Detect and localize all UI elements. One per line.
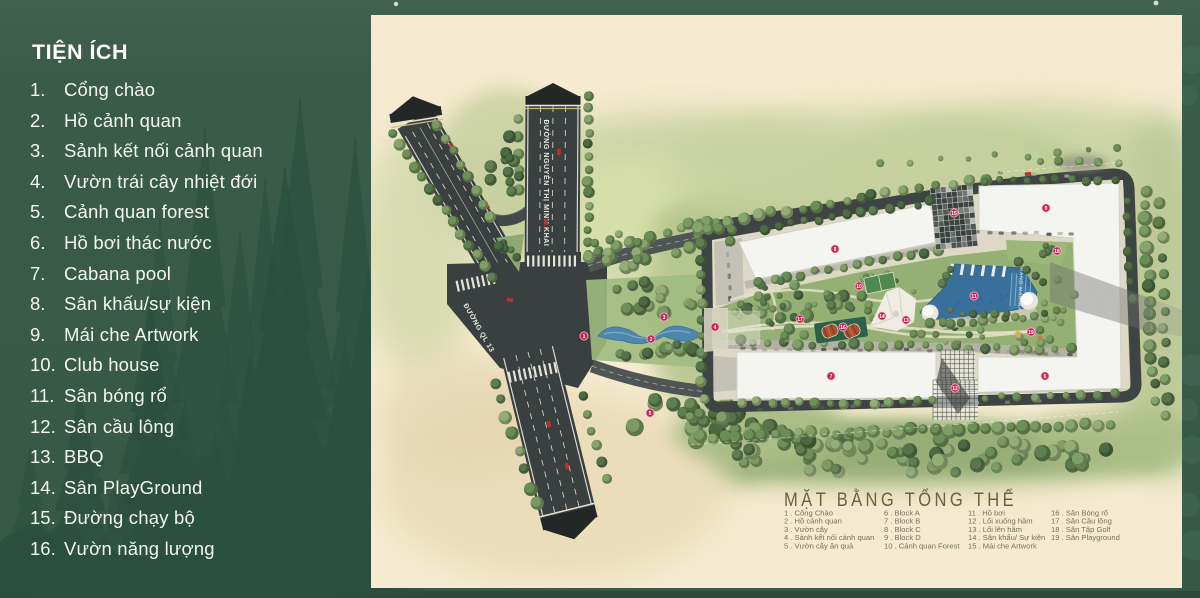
svg-text:16: 16 xyxy=(840,325,846,331)
svg-text:15: 15 xyxy=(951,211,957,217)
svg-text:2: 2 xyxy=(650,337,653,343)
svg-text:12: 12 xyxy=(952,386,958,392)
svg-text:6: 6 xyxy=(1044,374,1047,380)
svg-text:14: 14 xyxy=(879,314,885,320)
svg-text:7: 7 xyxy=(830,374,833,380)
svg-text:9: 9 xyxy=(1045,206,1048,212)
svg-text:8: 8 xyxy=(834,247,837,253)
svg-text:19 . Sân Playground: 19 . Sân Playground xyxy=(1051,533,1120,542)
svg-text:13: 13 xyxy=(903,318,909,324)
svg-text:17: 17 xyxy=(797,317,803,323)
svg-text:ĐƯỜNG NGUYỄN THỊ MINH KHAI: ĐƯỜNG NGUYỄN THỊ MINH KHAI xyxy=(542,120,551,247)
svg-text:10: 10 xyxy=(856,284,862,290)
svg-text:11: 11 xyxy=(971,294,977,300)
svg-text:19: 19 xyxy=(1028,330,1034,336)
svg-text:4: 4 xyxy=(714,325,717,331)
svg-text:15 . Mái che Artwork: 15 . Mái che Artwork xyxy=(968,541,1037,550)
svg-text:5 . Vườn cây ăn quả: 5 . Vườn cây ăn quả xyxy=(784,541,854,550)
svg-text:MẶT BẰNG TỔNG THỂ: MẶT BẰNG TỔNG THỂ xyxy=(784,487,1017,511)
svg-text:5: 5 xyxy=(649,411,652,417)
svg-text:10 . Cảnh quan Forest: 10 . Cảnh quan Forest xyxy=(884,541,960,550)
svg-text:1: 1 xyxy=(583,334,586,340)
svg-text:18: 18 xyxy=(1054,249,1060,255)
svg-text:3: 3 xyxy=(663,315,666,321)
